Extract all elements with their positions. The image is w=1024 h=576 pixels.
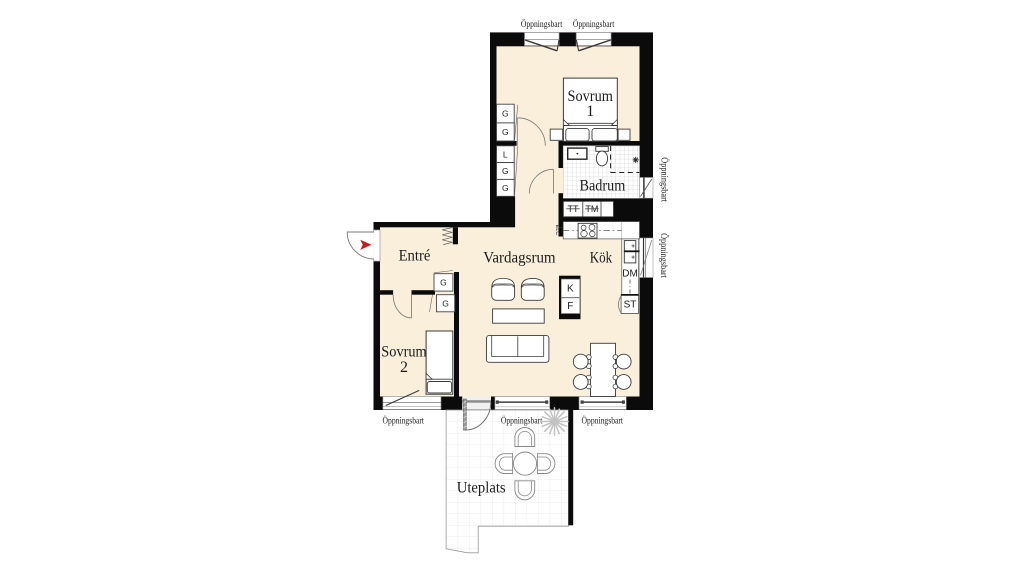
svg-text:G: G bbox=[502, 109, 509, 119]
svg-text:G: G bbox=[502, 166, 509, 176]
svg-text:Öppningsbart: Öppningsbart bbox=[521, 18, 563, 30]
svg-text:G: G bbox=[502, 183, 509, 193]
svg-text:ELC: ELC bbox=[554, 225, 560, 236]
svg-text:F: F bbox=[567, 301, 573, 312]
svg-text:DM: DM bbox=[622, 269, 638, 280]
svg-text:Öppningsbart: Öppningsbart bbox=[659, 157, 671, 202]
svg-text:K: K bbox=[567, 284, 574, 295]
svg-text:G: G bbox=[442, 299, 449, 309]
svg-text:G: G bbox=[440, 278, 447, 288]
svg-text:Uteplats: Uteplats bbox=[457, 480, 506, 497]
svg-text:Öppningsbart: Öppningsbart bbox=[658, 233, 670, 278]
svg-text:Öppningsbart: Öppningsbart bbox=[501, 414, 543, 426]
svg-text:Öppningsbart: Öppningsbart bbox=[582, 414, 624, 426]
svg-text:L: L bbox=[503, 149, 508, 159]
svg-text:1: 1 bbox=[586, 103, 594, 120]
svg-text:G: G bbox=[502, 127, 509, 137]
svg-text:Vardagsrum: Vardagsrum bbox=[483, 250, 556, 267]
svg-text:Kök: Kök bbox=[590, 250, 612, 267]
svg-text:Entré: Entré bbox=[399, 248, 431, 265]
svg-text:ST: ST bbox=[624, 300, 637, 311]
svg-text:Öppningsbart: Öppningsbart bbox=[383, 414, 425, 426]
svg-text:Sovrum: Sovrum bbox=[381, 343, 427, 360]
svg-text:Öppningsbart: Öppningsbart bbox=[573, 18, 615, 30]
svg-text:Badrum: Badrum bbox=[580, 177, 626, 194]
svg-text:2: 2 bbox=[400, 359, 408, 376]
